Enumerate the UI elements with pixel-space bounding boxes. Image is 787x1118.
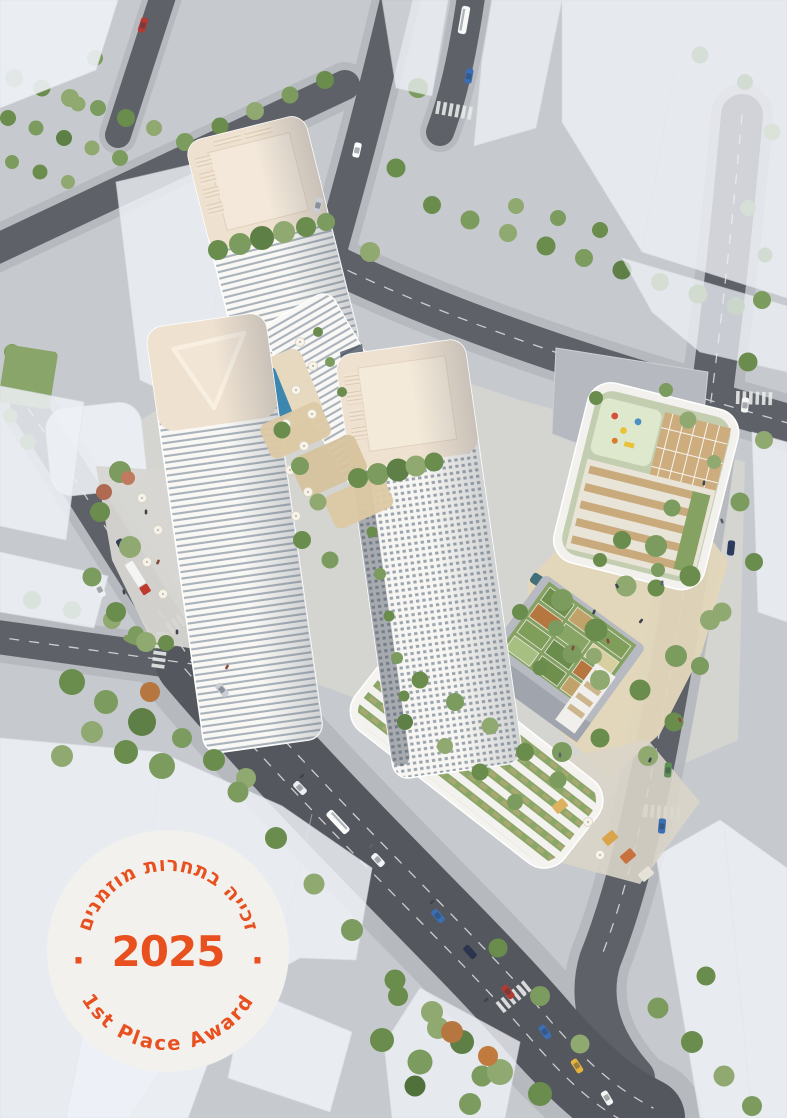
badge-separator-right: · <box>251 941 264 981</box>
aerial-render: זכייה בתחרות מוזמנים 2025 1st Place Awar… <box>0 0 787 1118</box>
badge-separator-left: · <box>72 941 85 981</box>
aerial-render-page: זכייה בתחרות מוזמנים 2025 1st Place Awar… <box>0 0 787 1118</box>
ghost-building <box>752 432 787 622</box>
award-badge: זכייה בתחרות מוזמנים 2025 1st Place Awar… <box>47 830 289 1072</box>
badge-year: 2025 <box>112 927 225 976</box>
